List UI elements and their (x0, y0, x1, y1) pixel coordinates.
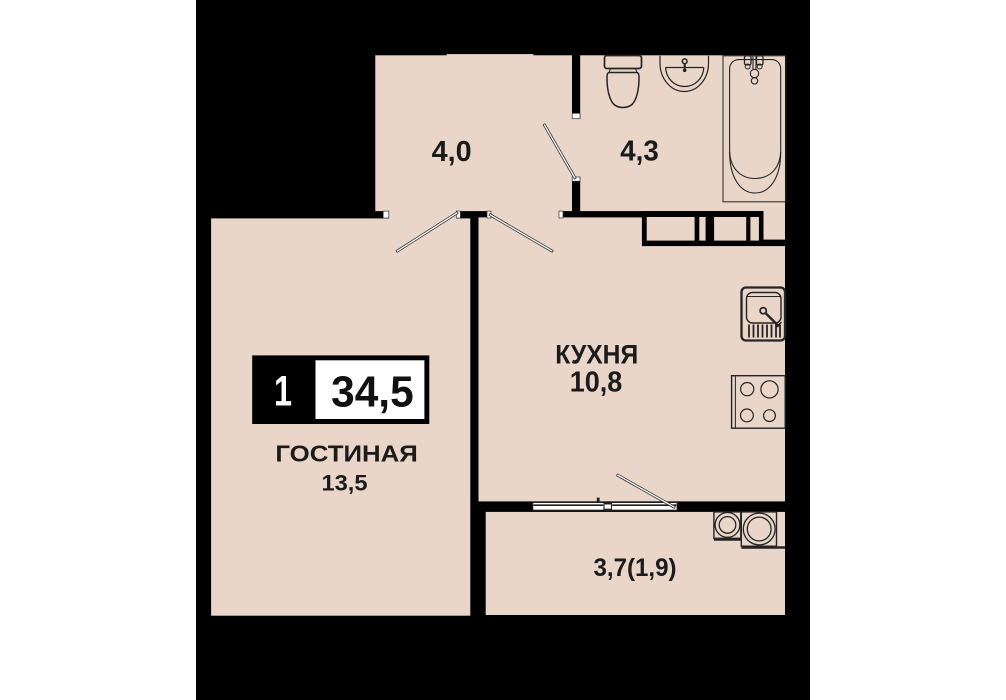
svg-text:4,0: 4,0 (432, 136, 472, 168)
svg-text:13,5: 13,5 (322, 471, 368, 496)
svg-text:34,5: 34,5 (331, 368, 414, 417)
svg-text:3,7(1,9): 3,7(1,9) (594, 554, 677, 582)
svg-text:10,8: 10,8 (570, 366, 623, 398)
svg-text:1: 1 (274, 368, 292, 416)
svg-text:4,3: 4,3 (620, 135, 659, 167)
svg-text:КУХНЯ: КУХНЯ (555, 339, 638, 369)
svg-text:ГОСТИНАЯ: ГОСТИНАЯ (275, 440, 418, 466)
